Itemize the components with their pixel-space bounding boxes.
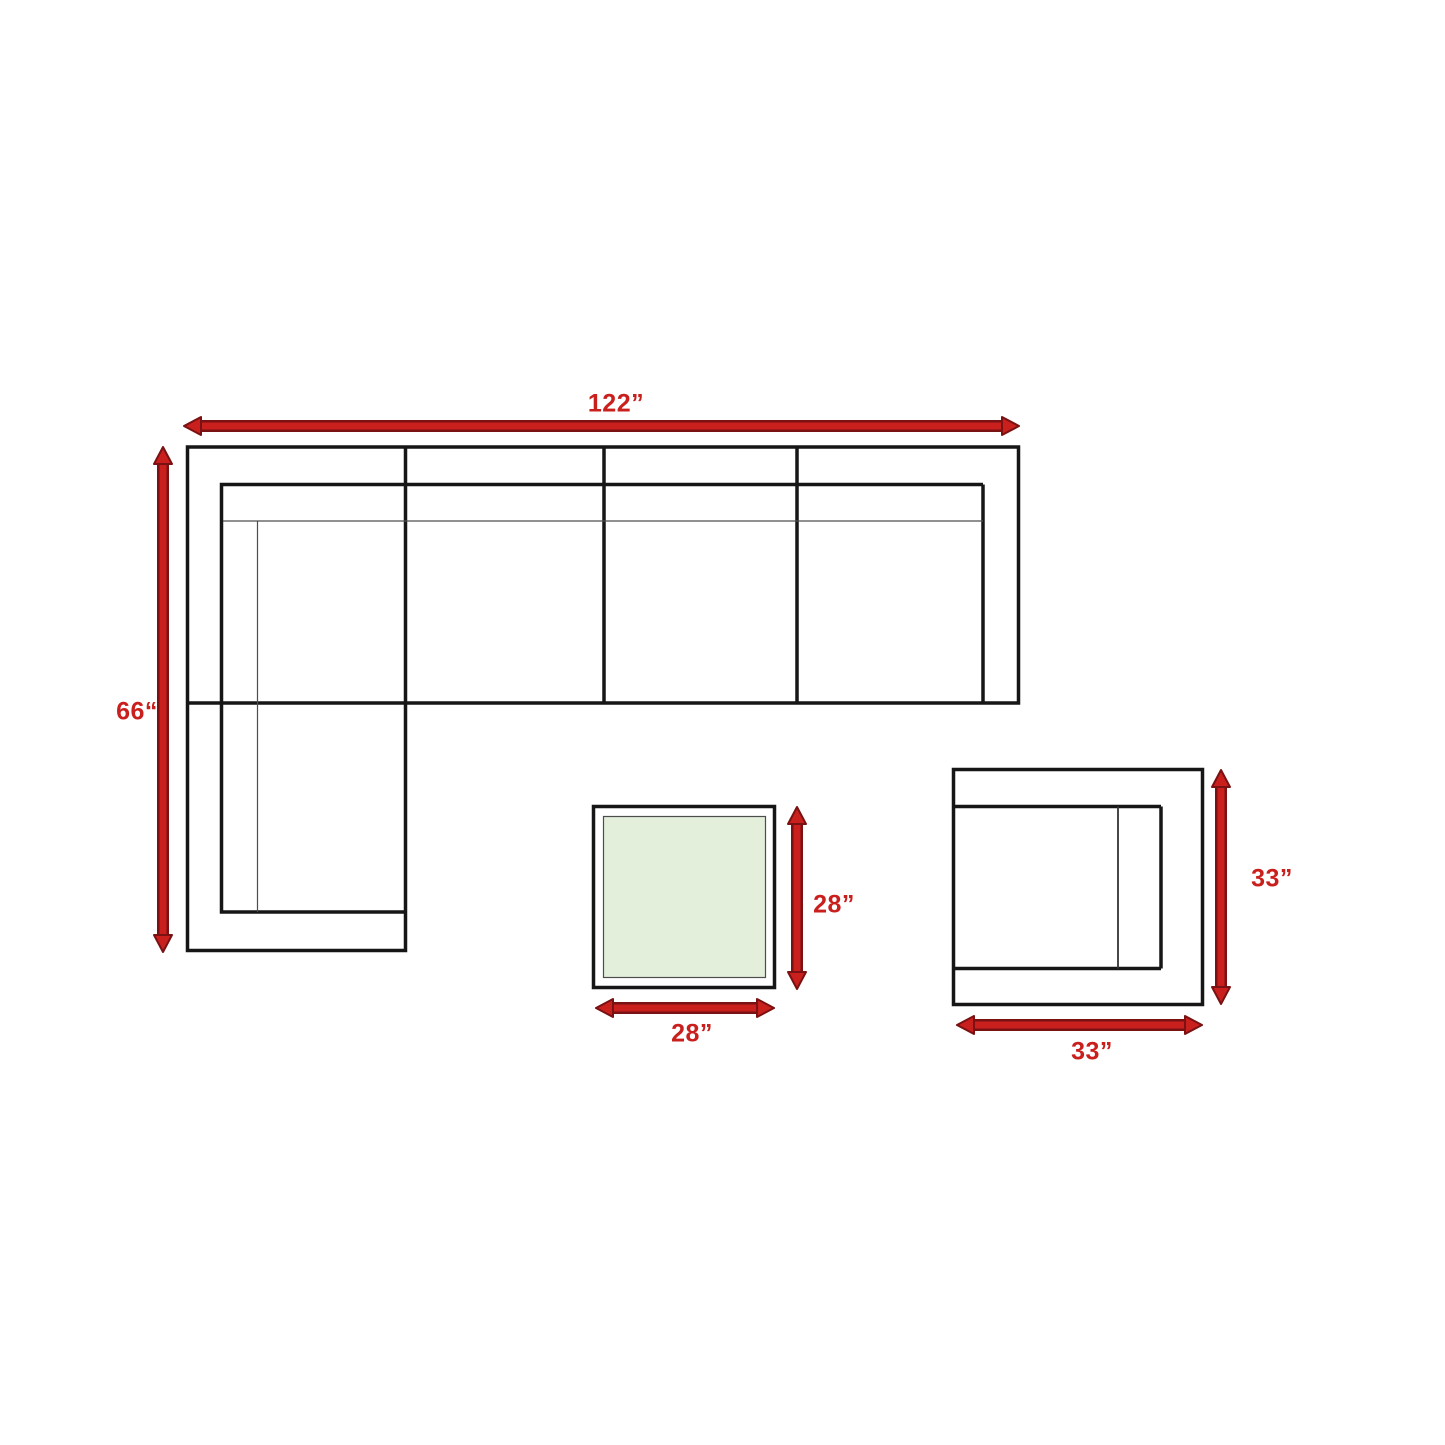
sofa-width-label: 122”	[588, 392, 644, 417]
diagram-line-art	[0, 0, 1445, 1445]
sofa-width-dimension-arrow	[184, 417, 1019, 435]
chair-depth-dimension-arrow	[1212, 770, 1230, 1004]
sofa-depth-label: 66“	[116, 700, 158, 725]
coffee-table-figure	[594, 807, 775, 988]
chair-width-dimension-arrow	[957, 1016, 1202, 1034]
lounge-chair-figure	[954, 770, 1203, 1005]
table-glass-top	[604, 817, 766, 978]
table-width-dimension-arrow	[596, 999, 774, 1017]
table-depth-label: 28”	[813, 893, 855, 918]
table-width-label: 28”	[671, 1022, 713, 1047]
chair-depth-label: 33”	[1251, 867, 1293, 892]
chair-width-label: 33”	[1071, 1040, 1113, 1065]
table-depth-dimension-arrow	[788, 807, 806, 989]
furniture-dimension-diagram: 122” 66“ 28” 28” 33” 33”	[0, 0, 1445, 1445]
